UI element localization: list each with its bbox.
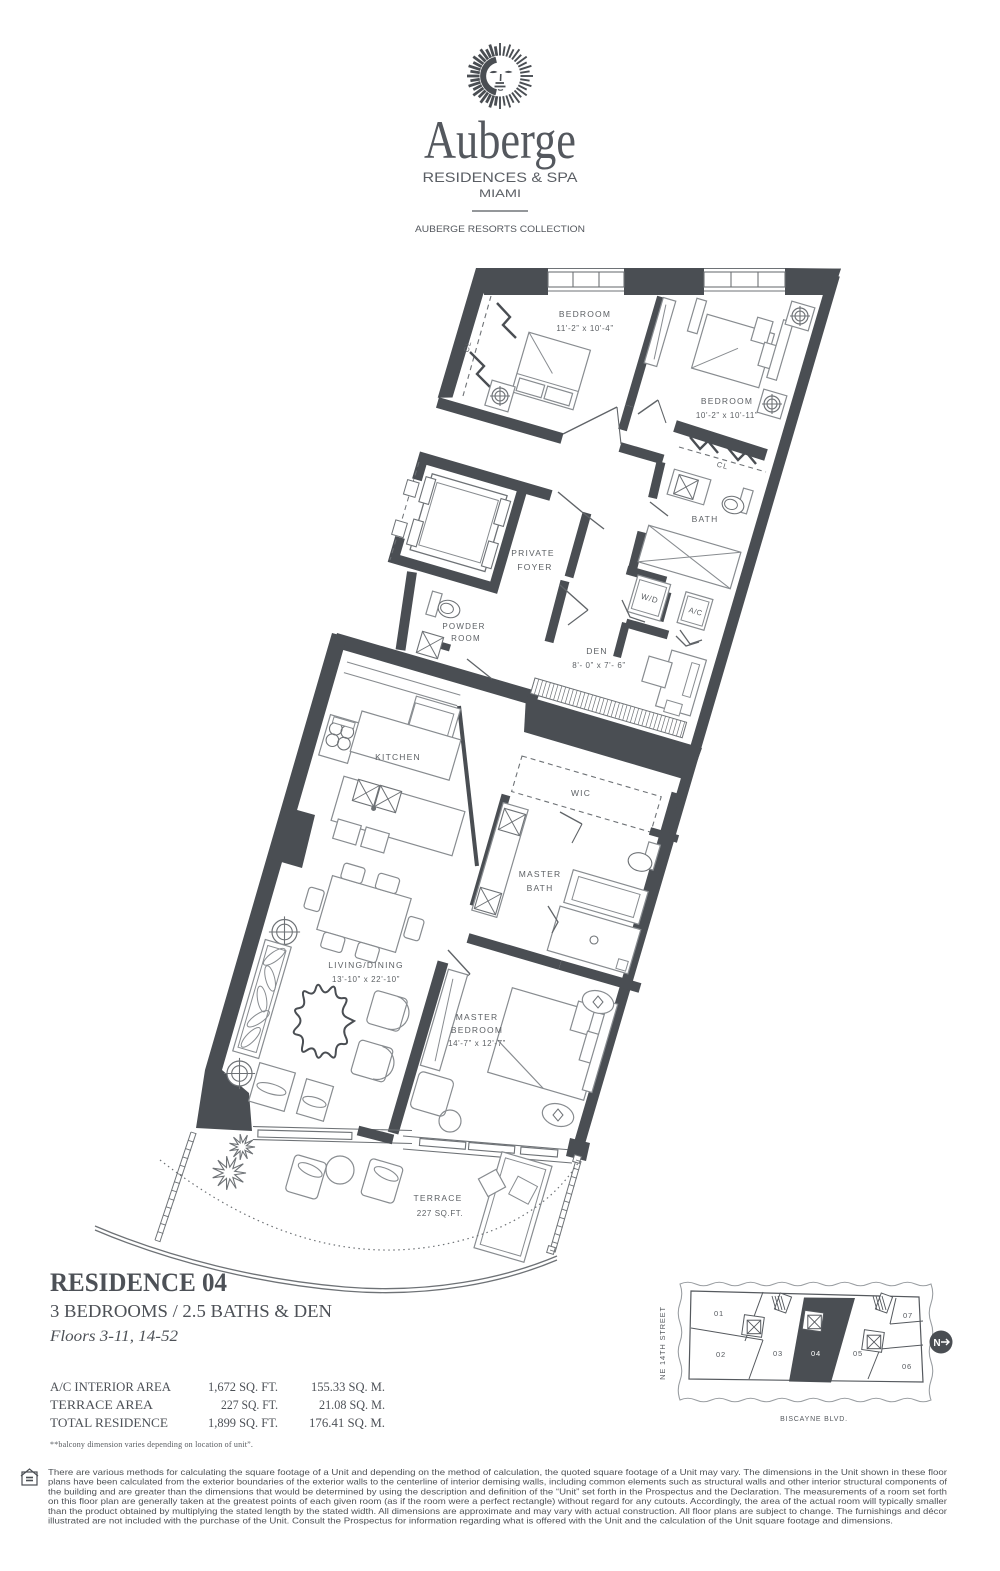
svg-text:11'-2” x 10'-4”: 11'-2” x 10'-4” (556, 324, 613, 333)
svg-text:01: 01 (714, 1309, 724, 1318)
svg-text:8'- 0” x 7'- 6”: 8'- 0” x 7'- 6” (572, 661, 625, 670)
svg-text:MASTER: MASTER (456, 1012, 499, 1022)
svg-text:**balcony dimension varies dep: **balcony dimension varies depending on … (50, 1440, 253, 1449)
svg-text:NE 14TH STREET: NE 14TH STREET (658, 1306, 667, 1380)
svg-text:TERRACE AREA: TERRACE AREA (50, 1398, 153, 1412)
svg-text:06: 06 (902, 1362, 912, 1371)
svg-text:than the product obtained by m: than the product obtained by multiplying… (48, 1507, 947, 1516)
svg-text:There are various methods for: There are various methods for calculatin… (48, 1468, 947, 1477)
svg-text:ROOM: ROOM (451, 634, 481, 643)
svg-text:POWDER: POWDER (442, 622, 485, 631)
svg-text:BEDROOM: BEDROOM (559, 309, 611, 319)
svg-text:MIAMI: MIAMI (479, 188, 521, 200)
svg-text:04: 04 (811, 1349, 821, 1358)
svg-text:Auberge: Auberge (424, 110, 576, 170)
svg-text:plans have been calculated fro: plans have been calculated from the exte… (48, 1478, 948, 1487)
svg-text:03: 03 (773, 1349, 783, 1358)
svg-text:KITCHEN: KITCHEN (375, 752, 421, 762)
svg-text:RESIDENCE 04: RESIDENCE 04 (50, 1268, 227, 1297)
svg-text:13'-10” x 22'-10”: 13'-10” x 22'-10” (332, 975, 400, 984)
svg-text:FOYER: FOYER (517, 562, 552, 572)
svg-text:on this floor plan are general: on this floor plan are generally taken a… (48, 1497, 947, 1506)
svg-text:BISCAYNE BLVD.: BISCAYNE BLVD. (780, 1416, 848, 1423)
svg-text:176.41 SQ. M.: 176.41 SQ. M. (309, 1416, 385, 1430)
svg-text:Floors 3-11, 14-52: Floors 3-11, 14-52 (49, 1328, 178, 1345)
svg-text:02: 02 (716, 1350, 726, 1359)
svg-text:WIC: WIC (571, 788, 591, 798)
svg-text:BATH: BATH (692, 514, 719, 524)
svg-text:illustrated are not included w: illustrated are not included with the pu… (48, 1517, 893, 1526)
svg-text:1,672 SQ. FT.: 1,672 SQ. FT. (208, 1380, 278, 1394)
svg-text:05: 05 (853, 1349, 863, 1358)
svg-text:A/C INTERIOR AREA: A/C INTERIOR AREA (50, 1380, 171, 1394)
svg-text:14'-7” x 12'-7”: 14'-7” x 12'-7” (448, 1039, 506, 1048)
svg-text:BATH: BATH (527, 883, 554, 893)
svg-text:AUBERGE RESORTS COLLECTION: AUBERGE RESORTS COLLECTION (415, 224, 585, 235)
svg-text:PRIVATE: PRIVATE (511, 548, 555, 558)
svg-text:227 SQ.FT.: 227 SQ.FT. (417, 1209, 463, 1218)
svg-text:1,899 SQ. FT.: 1,899 SQ. FT. (208, 1416, 278, 1430)
svg-text:155.33 SQ. M.: 155.33 SQ. M. (311, 1380, 385, 1394)
svg-text:227 SQ. FT.: 227 SQ. FT. (221, 1398, 278, 1412)
svg-text:N: N (933, 1338, 940, 1349)
svg-text:BEDROOM: BEDROOM (701, 396, 753, 406)
svg-text:BEDROOM: BEDROOM (451, 1025, 503, 1035)
svg-text:21.08 SQ. M.: 21.08 SQ. M. (319, 1398, 385, 1412)
svg-text:3 BEDROOMS / 2.5 BATHS & DEN: 3 BEDROOMS / 2.5 BATHS & DEN (50, 1301, 332, 1321)
svg-text:DEN: DEN (586, 646, 608, 656)
svg-text:LIVING/DINING: LIVING/DINING (328, 960, 404, 970)
svg-text:RESIDENCES & SPA: RESIDENCES & SPA (423, 170, 578, 185)
svg-text:TERRACE: TERRACE (413, 1193, 462, 1203)
svg-text:the building and are greater t: the building and are greater than the di… (48, 1487, 947, 1496)
svg-text:10'-2” x 10'-11”: 10'-2” x 10'-11” (696, 411, 758, 420)
svg-text:MASTER: MASTER (519, 869, 562, 879)
svg-text:TOTAL RESIDENCE: TOTAL RESIDENCE (50, 1416, 168, 1430)
svg-text:07: 07 (903, 1311, 913, 1320)
